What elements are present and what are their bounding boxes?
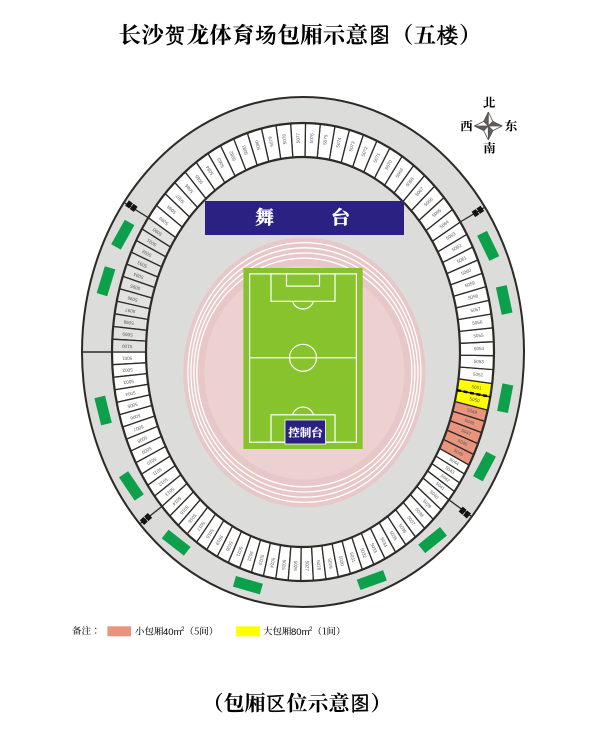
svg-text:5026: 5026 xyxy=(293,561,298,572)
svg-text:5001: 5001 xyxy=(121,356,132,361)
svg-text:5028: 5028 xyxy=(316,560,322,571)
svg-text:5027: 5027 xyxy=(304,561,309,572)
svg-text:5055: 5055 xyxy=(473,333,484,339)
svg-text:5100: 5100 xyxy=(121,344,132,349)
svg-text:5077: 5077 xyxy=(296,133,301,144)
svg-text:5054: 5054 xyxy=(474,346,485,351)
svg-text:5053: 5053 xyxy=(474,359,485,365)
svg-text:40m: 40m xyxy=(163,627,182,638)
svg-text:80m: 80m xyxy=(291,627,310,638)
svg-text:5076: 5076 xyxy=(309,133,315,144)
svg-text:5099: 5099 xyxy=(122,331,133,337)
svg-text:5002: 5002 xyxy=(122,367,133,373)
